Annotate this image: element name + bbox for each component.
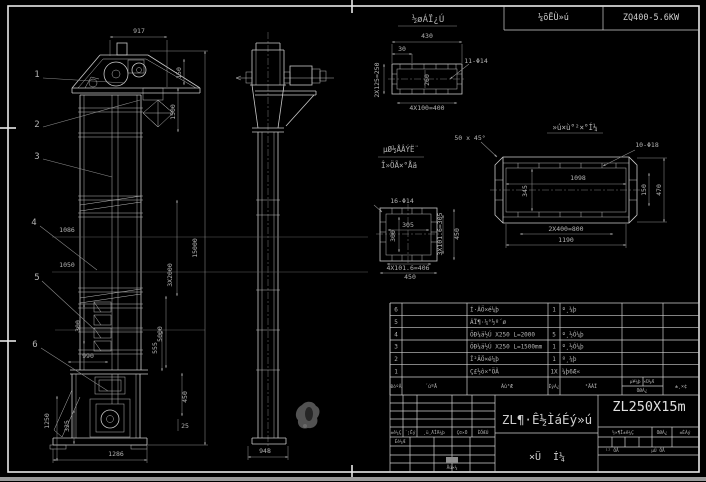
dimension-lines (53, 37, 667, 463)
titleblock-label: µÚ ÕÅ (651, 447, 665, 454)
drawing-model: ZL250X15m (600, 397, 698, 416)
dim-label: 260 (423, 74, 431, 86)
titleblock-label: ¹² ÕÅ (605, 447, 619, 454)
bom-header: ÖØÁ¿ (637, 387, 648, 394)
bom-row-no: 1 (394, 368, 398, 375)
bom-row-name: Ç£½ô×°ÖÃ (470, 368, 499, 375)
bom-row-qty: 1 (552, 344, 556, 351)
cad-drawing-page: ÐòºÅ´úºÅÃû³ÆÊýÁ¿²ÄÁÏµ¥¼þ ×Ü¼ÆÖØÁ¿±¸×¢6Í·… (0, 0, 706, 482)
dim-label: 5000 (156, 326, 164, 342)
callout-number: 1 (34, 70, 39, 80)
bom-row-name: ÁÏ¶·¼°½º´ø (470, 319, 507, 326)
dim-label: 150 (175, 67, 183, 79)
dim-label: 1098 (570, 174, 586, 182)
bom-row-material: º¸½Ó¼þ (562, 344, 584, 351)
dim-label: 917 (133, 27, 145, 35)
titleblock-label: ½×¶Î±ê¼Ç (612, 429, 634, 436)
dim-label: 305 (402, 221, 414, 229)
drawing-type: ×Ü Í¼ (497, 448, 597, 466)
callout-number: 2 (34, 120, 39, 130)
titleblock-label: Éè¼Æ (395, 437, 406, 445)
dim-label: 2X125=250 (373, 62, 381, 97)
bucket-chain (94, 302, 111, 351)
bom-header: ´úºÅ (425, 383, 437, 390)
dim-label: 470 (655, 184, 663, 196)
bom-row-name: Í·ÂÖ×é¼þ (470, 306, 499, 314)
bom-row-material: ¼þ6Æ« (562, 368, 580, 375)
hole-note: 16-Φ14 (390, 197, 414, 205)
dim-label: 1500 (169, 104, 177, 120)
dim-label: 325 (63, 420, 71, 432)
bom-row-qty: 5 (552, 331, 556, 338)
dim-label: 150 (640, 184, 648, 196)
bom-row-material: º¸¼þ (562, 356, 577, 363)
bom-header: ÊýÁ¿ (549, 382, 560, 390)
reducer-label: ¼õËÙ»ú (504, 6, 603, 30)
bom-row-no: 6 (394, 307, 398, 314)
dim-label: 4X101.6=406 (386, 264, 429, 272)
detail-c-note-line2: Î»ÖÃ×°Åä (381, 161, 417, 170)
bom-row-material: º¸½Ó¼þ (562, 331, 584, 338)
dim-label: 1190 (558, 236, 574, 244)
bottom-strip (0, 477, 706, 481)
dim-label: 3X2000 (166, 263, 174, 287)
bom-header: ²ÄÁÏ (585, 383, 597, 390)
base-frame-detail (490, 133, 642, 223)
dim-label: 345 (521, 185, 529, 197)
hole-note: 50 x 45° (454, 134, 485, 142)
level-lines (52, 237, 368, 330)
titleblock-label: ±ÈÀý (680, 428, 691, 436)
callout-leaders (40, 78, 140, 391)
bom-row-qty: 1X (550, 368, 558, 375)
titleblock-label: ¸ü¸ÄÎÄ¼þ (423, 429, 445, 436)
reducer-model: ZQ400-5.6KW (603, 6, 699, 30)
dim-label: 2X400=800 (548, 225, 583, 233)
hole-note: 11-Φ14 (464, 57, 488, 65)
titleblock-label: Ç©×Ö (457, 429, 468, 436)
detail-a-title: ½øÁÏ¿Ú (412, 13, 445, 25)
dim-label: 4X100=400 (409, 104, 444, 112)
dim-label: 450 (453, 228, 461, 240)
bom-row-no: 2 (394, 356, 398, 363)
dim-label: 450 (181, 391, 189, 403)
dim-label: 300 (389, 230, 397, 242)
bom-row-no: 4 (394, 331, 398, 338)
bom-table: ÐòºÅ´úºÅÃû³ÆÊýÁ¿²ÄÁÏµ¥¼þ ×Ü¼ÆÖØÁ¿±¸×¢6Í·… (390, 303, 699, 395)
callout-number: 6 (32, 340, 37, 350)
dim-label: 948 (259, 447, 271, 455)
titleblock-label: Åú×¼ (447, 464, 458, 471)
side-elevation-view (236, 32, 334, 452)
bom-row-name: Î²ÂÖ×é¼þ (470, 356, 499, 363)
bom-row-material: º¸¼þ (562, 307, 577, 314)
titleblock-label: ±ê¼Ç (391, 429, 402, 436)
bom-row-name: ÖÐ¼ä½Ú X250 L=1500mm (470, 344, 543, 351)
machine-name: ZL¶·Ê½ÌáÉý»ú (497, 408, 597, 430)
dim-label: 990 (82, 352, 94, 360)
dim-label: 555 (151, 342, 159, 354)
callout-number: 3 (34, 152, 39, 162)
detail-c-note-line1: µØ½ÅÂÝË¨ (383, 145, 419, 154)
dim-label: 1086 (59, 226, 75, 234)
callout-number: 4 (31, 218, 36, 228)
dim-label: 25 (181, 422, 189, 430)
anchor-plate-detail (374, 157, 441, 265)
dim-label: 1050 (59, 261, 75, 269)
bom-row-qty: 1 (552, 307, 556, 314)
bom-header: ÐòºÅ (391, 383, 402, 390)
callout-number: 5 (34, 273, 39, 283)
dim-label: 15000 (191, 238, 199, 258)
cursor-smudge (296, 402, 320, 429)
bom-header: Ãû³Æ (501, 383, 513, 390)
dim-label: 3X101.6=305 (436, 212, 444, 255)
bom-row-no: 3 (394, 344, 398, 351)
titleblock-label: ÈÕÆÚ (478, 428, 489, 436)
dim-label: 300 (74, 320, 82, 332)
bom-row-no: 5 (394, 319, 398, 326)
bom-row-name: ÖÐ¼ä½Ú X250 L=2000 (470, 331, 535, 338)
drawing-frame (0, 0, 699, 478)
dim-label: 30 (398, 45, 406, 53)
dim-label: 450 (404, 273, 416, 281)
titleblock-label: ´¦Êý (405, 428, 416, 436)
bom-header: µ¥¼þ ×Ü¼Æ (630, 378, 655, 385)
signature-smudge (446, 457, 458, 463)
bom-header: ±¸×¢ (675, 384, 687, 390)
detail-b-title: »ú×ù°²×°Í¼ (552, 123, 598, 132)
dim-label: 1250 (43, 413, 51, 429)
dim-label: 1286 (108, 450, 124, 458)
hole-note: 10-Φ18 (635, 141, 659, 149)
bom-row-qty: 1 (552, 356, 556, 363)
titleblock-label: ÖØÁ¿ (657, 429, 668, 436)
dim-label: 430 (421, 32, 433, 40)
